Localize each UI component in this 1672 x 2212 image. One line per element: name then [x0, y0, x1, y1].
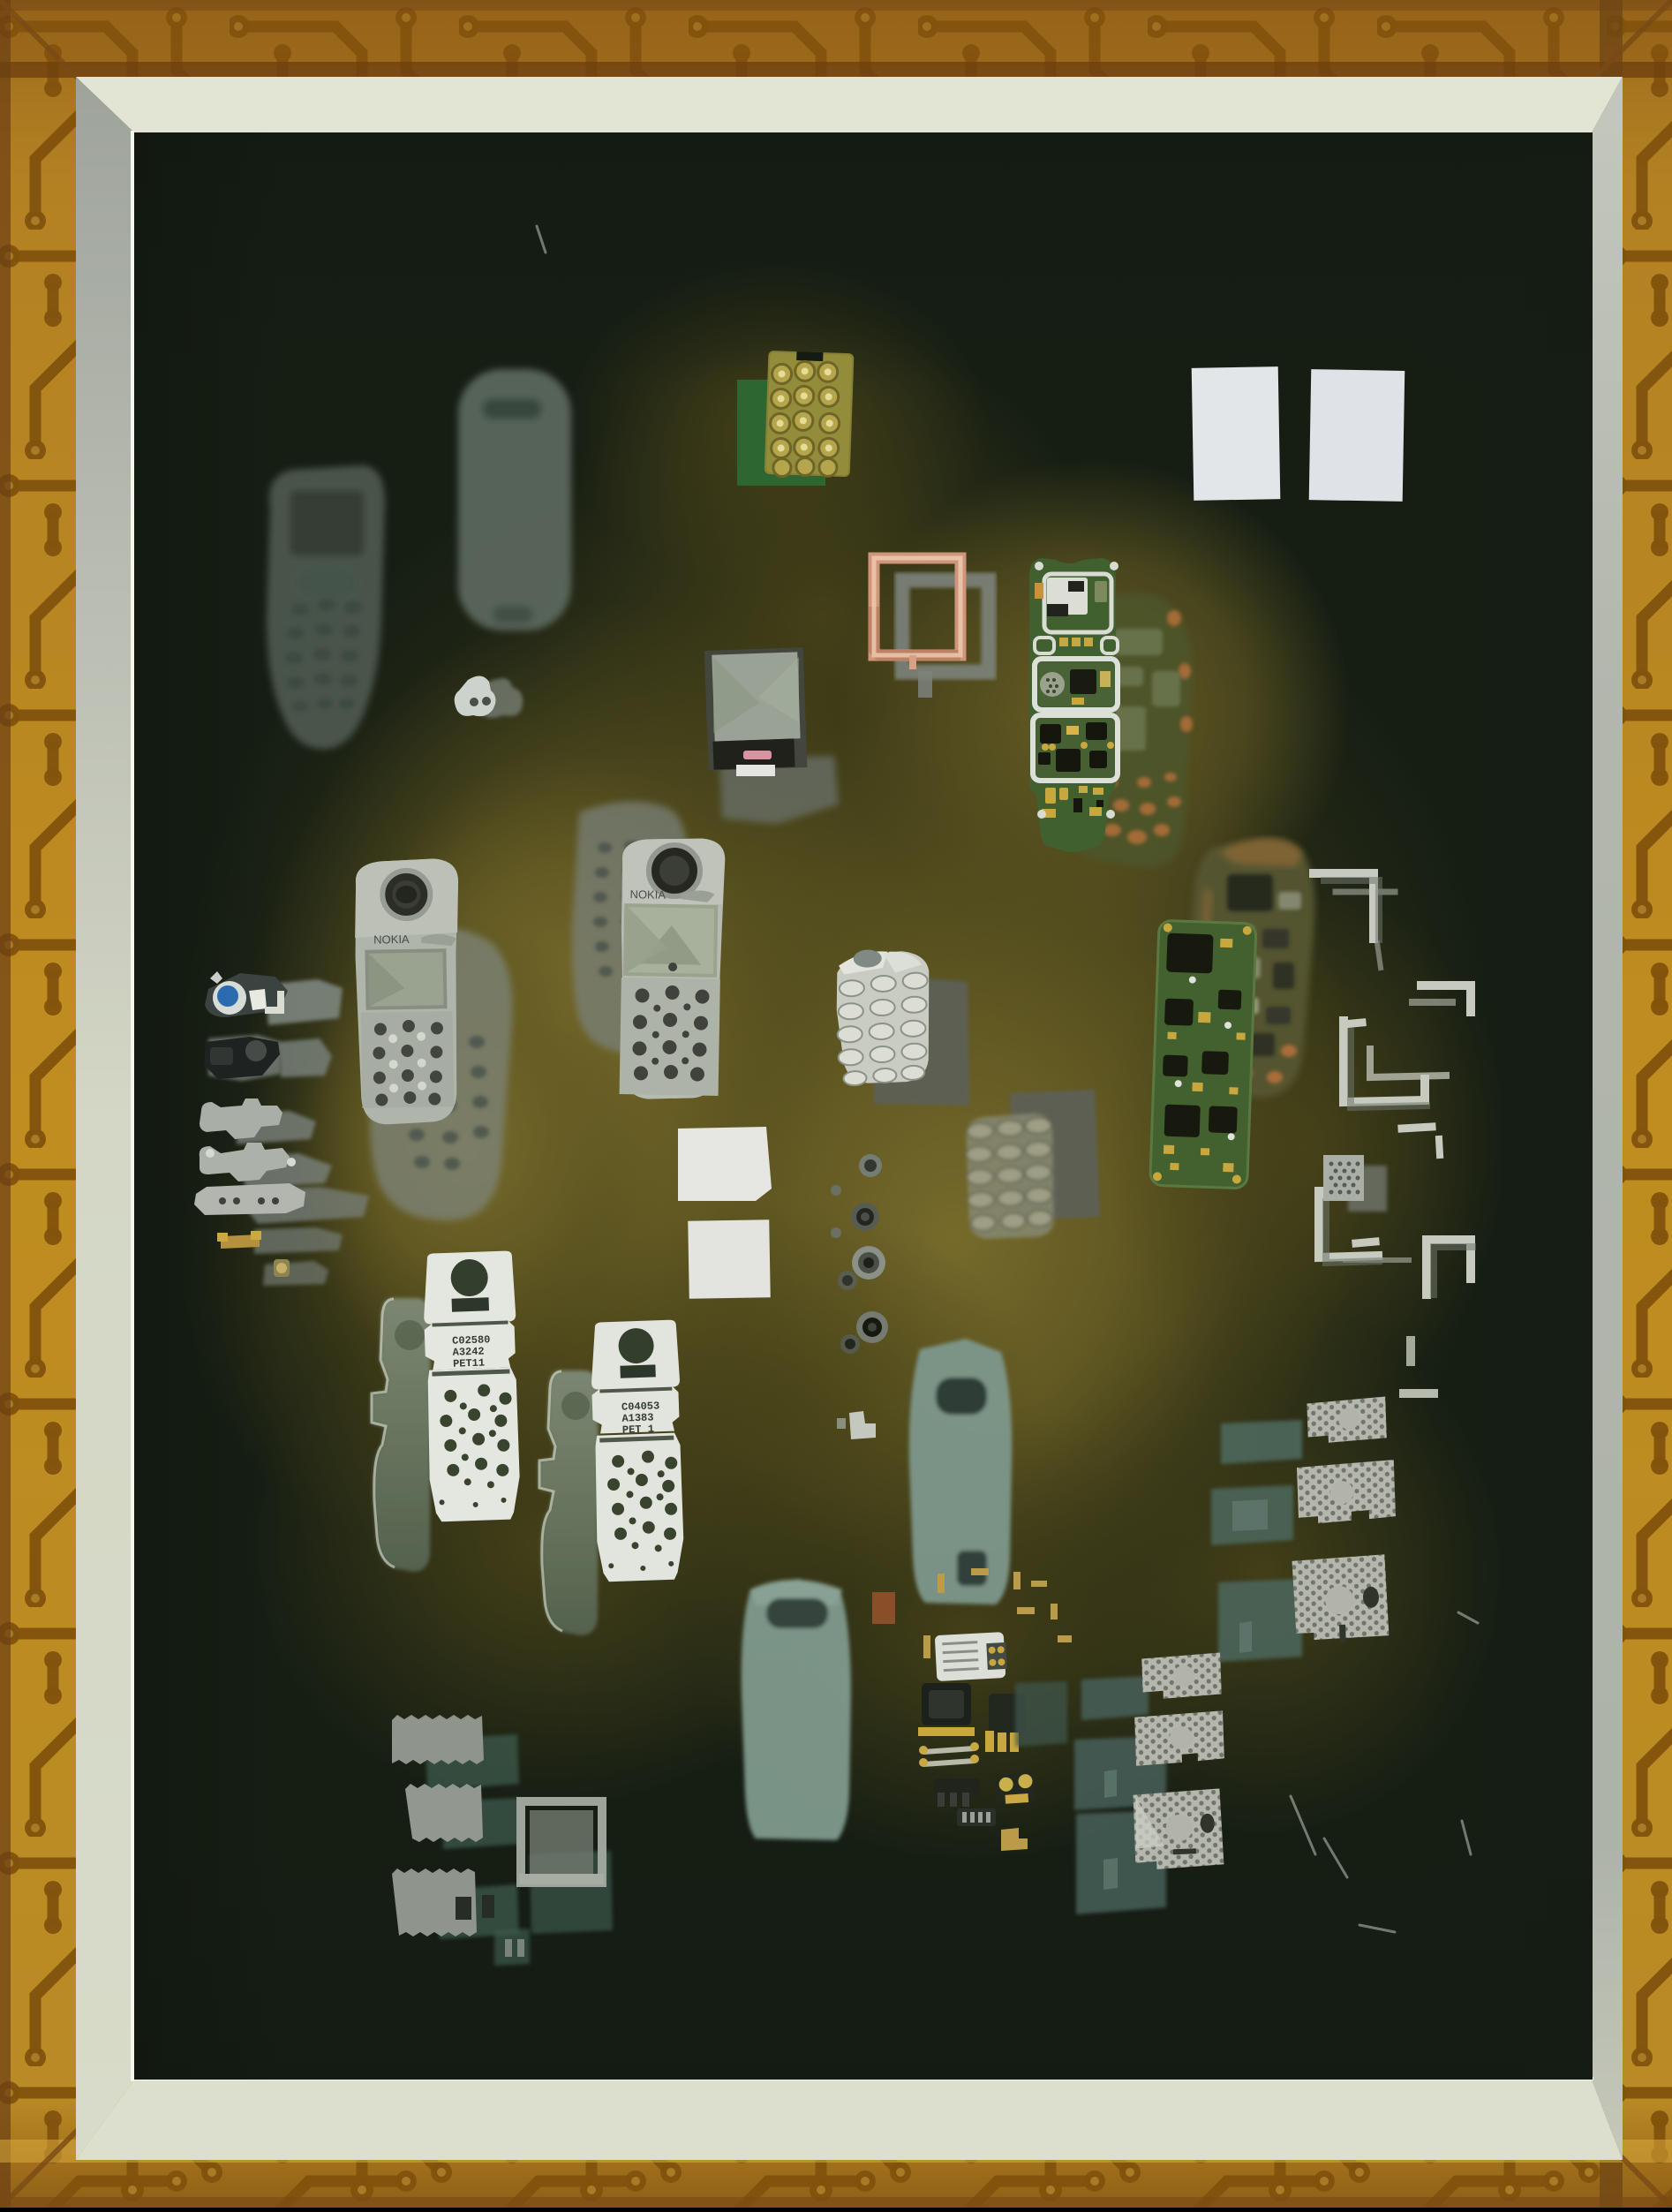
svg-text:NOKIA: NOKIA — [373, 932, 410, 947]
svg-text:NOKIA: NOKIA — [629, 887, 666, 902]
svg-text:PET11: PET11 — [453, 1356, 485, 1370]
svg-text:PET 1: PET 1 — [622, 1423, 654, 1436]
